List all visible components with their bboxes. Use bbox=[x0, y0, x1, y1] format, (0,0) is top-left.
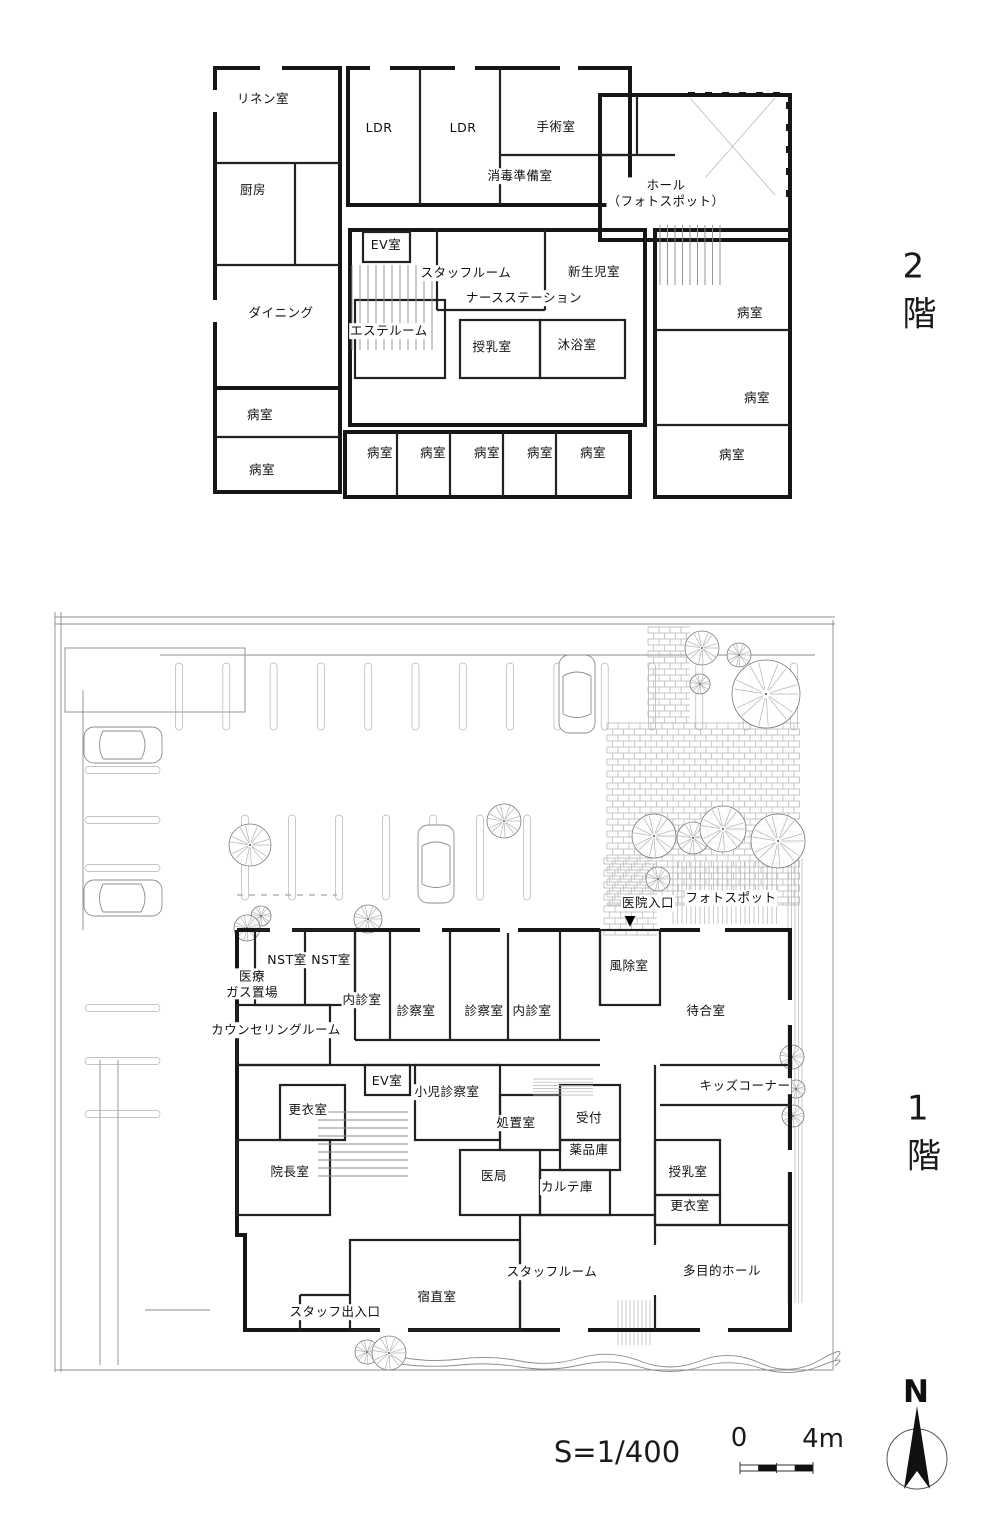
room-label: 受付 bbox=[575, 1110, 603, 1126]
room-label: 病室 bbox=[366, 445, 394, 461]
room-label: LDR bbox=[365, 120, 394, 136]
room-label: 診察室 bbox=[463, 1003, 504, 1019]
room-label: スタッフ出入口 bbox=[288, 1304, 381, 1320]
room-label: 診察室 bbox=[395, 1003, 436, 1019]
room-label: ホール （フォトスポット） bbox=[606, 177, 725, 208]
room-label: 病室 bbox=[473, 445, 501, 461]
room-label: 医院入口 bbox=[621, 895, 675, 911]
room-label: 病室 bbox=[718, 447, 746, 463]
room-label: LDR bbox=[449, 120, 478, 136]
room-label: 授乳室 bbox=[667, 1164, 708, 1180]
room-label: リネン室 bbox=[236, 91, 290, 107]
room-label: 待合室 bbox=[685, 1003, 726, 1019]
room-label: 病室 bbox=[419, 445, 447, 461]
room-label: 授乳室 bbox=[471, 339, 512, 355]
room-label: 更衣室 bbox=[669, 1198, 710, 1214]
room-label: 厨房 bbox=[239, 182, 267, 198]
room-label: EV室 bbox=[371, 1073, 403, 1089]
room-label: 新生児室 bbox=[567, 264, 621, 280]
room-label: NST室 bbox=[266, 952, 307, 968]
room-label: 宿直室 bbox=[416, 1289, 457, 1305]
room-label: 病室 bbox=[736, 305, 764, 321]
room-label: ダイニング bbox=[247, 305, 314, 321]
room-label: スタッフルーム bbox=[506, 1264, 599, 1280]
floor-plan-sheet: リネン室LDRLDR手術室消毒準備室厨房ホール （フォトスポット）EV室スタッフ… bbox=[0, 0, 1000, 1514]
room-label: 病室 bbox=[246, 407, 274, 423]
room-label: フォトスポット bbox=[684, 890, 777, 906]
scale-note: S=1/400 bbox=[554, 1435, 680, 1469]
room-label: 薬品庫 bbox=[568, 1142, 609, 1158]
room-label: 医局 bbox=[480, 1168, 508, 1184]
room-label: エステルーム bbox=[349, 323, 429, 339]
floor-tag-2f: 2 階 bbox=[903, 247, 968, 336]
room-label: 院長室 bbox=[269, 1164, 310, 1180]
room-label: ナースステーション bbox=[465, 290, 583, 306]
scale-bar-zero: 0 bbox=[731, 1423, 748, 1453]
room-label: 多目的ホール bbox=[682, 1263, 762, 1279]
room-label: 医療 ガス置場 bbox=[225, 968, 279, 999]
room-label: 手術室 bbox=[535, 119, 576, 135]
floor-tag-1f: 1 階 bbox=[907, 1089, 969, 1178]
scale-bar-4m: 4m bbox=[802, 1424, 844, 1454]
room-label: スタッフルーム bbox=[420, 265, 513, 281]
room-label: 小児診察室 bbox=[413, 1084, 480, 1100]
room-label: EV室 bbox=[370, 237, 402, 253]
room-label: 風除室 bbox=[608, 958, 649, 974]
room-label: キッズコーナー bbox=[698, 1078, 791, 1094]
room-labels-layer: リネン室LDRLDR手術室消毒準備室厨房ホール （フォトスポット）EV室スタッフ… bbox=[0, 0, 1000, 1514]
room-label: 病室 bbox=[743, 390, 771, 406]
room-label: 消毒準備室 bbox=[486, 168, 553, 184]
scale-bar bbox=[735, 1460, 825, 1476]
room-label: 病室 bbox=[579, 445, 607, 461]
room-label: 病室 bbox=[248, 462, 276, 478]
room-label: カルテ庫 bbox=[540, 1179, 594, 1195]
north-compass-icon bbox=[880, 1380, 956, 1496]
room-label: 内診室 bbox=[341, 992, 382, 1008]
room-label: 沐浴室 bbox=[556, 337, 597, 353]
entrance-marker-icon: ▼ bbox=[625, 913, 636, 929]
room-label: NST室 bbox=[310, 952, 351, 968]
room-label: 更衣室 bbox=[287, 1102, 328, 1118]
room-label: 内診室 bbox=[511, 1003, 552, 1019]
room-label: カウンセリングルーム bbox=[210, 1022, 342, 1038]
room-label: 病室 bbox=[526, 445, 554, 461]
room-label: 処置室 bbox=[495, 1115, 536, 1131]
